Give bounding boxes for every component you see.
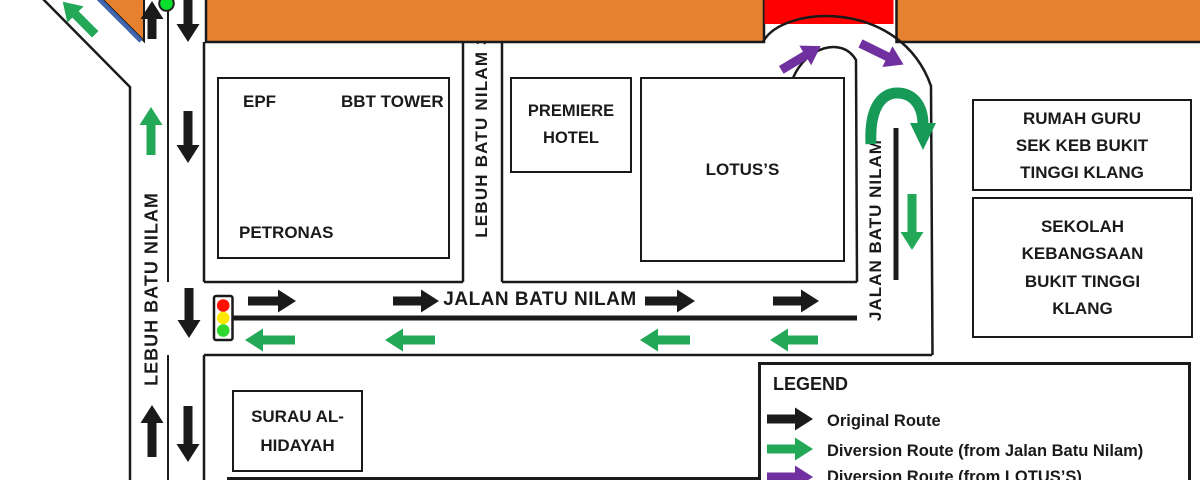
black-route-arrow — [393, 290, 439, 313]
bbt-tower-label: BBT TOWER — [341, 92, 444, 112]
black-route-arrow — [178, 288, 201, 338]
petronas-label: PETRONAS — [239, 223, 333, 243]
sekolah-line1: SEKOLAH — [1041, 213, 1124, 241]
premiere-hotel-building: PREMIERE HOTEL — [510, 77, 632, 173]
green-route-arrow — [140, 107, 163, 155]
black-route-arrow — [773, 290, 819, 313]
rumah-guru-line3: TINGGI KLANG — [1020, 159, 1144, 186]
legend-item-diversion-lotus: Diversion Route (from LOTUS’S) — [827, 468, 1082, 480]
black-route-arrow — [141, 1, 164, 39]
legend-title: LEGEND — [773, 374, 848, 395]
legend-item-original-route: Original Route — [827, 412, 941, 431]
sekolah-line3: BUKIT TINGGI — [1025, 268, 1140, 296]
lotus-label: LOTUS’S — [706, 156, 780, 183]
epf-bbt-petronas-block: EPF BBT TOWER PETRONAS — [217, 77, 450, 259]
black-route-arrow — [177, 0, 200, 42]
surau-line1: SURAU AL- — [251, 402, 344, 431]
sekolah-kebangsaan-building: SEKOLAH KEBANGSAAN BUKIT TINGGI KLANG — [972, 197, 1193, 338]
surau-line2: HIDAYAH — [260, 431, 334, 460]
premiere-hotel-label-line1: PREMIERE — [528, 98, 614, 125]
closed-road-section — [765, 0, 894, 24]
lebuh-batu-nilam-3-road-label: LEBUH BATU NILAM 3 — [472, 34, 492, 238]
epf-label: EPF — [243, 92, 276, 112]
purple-route-arrow — [775, 36, 826, 79]
black-route-arrow — [177, 406, 200, 462]
black-route-arrow — [645, 290, 695, 313]
blue-road-stripe — [98, 0, 141, 41]
lebuh-batu-nilam-road-label: LEBUH BATU NILAM — [142, 192, 163, 386]
traffic-light-icon — [214, 296, 233, 340]
green-route-arrow — [640, 329, 690, 352]
green-route-arrow — [385, 329, 435, 352]
green-route-arrow — [901, 194, 924, 250]
lebuh-left-edge — [42, 0, 130, 480]
legend-item-diversion-jalan-batu-nilam: Diversion Route (from Jalan Batu Nilam) — [827, 442, 1143, 461]
orange-block-top-right — [897, 0, 1200, 42]
green-route-arrow — [55, 0, 104, 42]
lotus-building: LOTUS’S — [640, 77, 845, 262]
rumah-guru-building: RUMAH GURU SEK KEB BUKIT TINGGI KLANG — [972, 99, 1192, 191]
orange-wedge-top-left — [101, 0, 144, 41]
black-route-arrow — [177, 111, 200, 163]
signal-dot-icon — [159, 0, 174, 11]
diversion-map: EPF BBT TOWER PETRONAS PREMIERE HOTEL LO… — [0, 0, 1200, 480]
green-route-arrow — [245, 329, 295, 352]
purple-route-arrow — [855, 33, 908, 75]
sekolah-line4: KLANG — [1052, 295, 1112, 323]
rumah-guru-line1: RUMAH GURU — [1023, 105, 1141, 132]
legend: LEGEND Original Route Diversion Route (f… — [758, 362, 1191, 480]
jalan-batu-nilam-vertical-road-label: JALAN BATU NILAM — [866, 139, 886, 321]
rumah-guru-line2: SEK KEB BUKIT — [1016, 132, 1148, 159]
surau-building: SURAU AL- HIDAYAH — [232, 390, 363, 472]
green-route-arrow — [770, 329, 818, 352]
black-route-arrow — [141, 405, 164, 457]
black-route-arrow — [248, 290, 296, 313]
sekolah-line2: KEBANGSAAN — [1022, 240, 1144, 268]
premiere-hotel-label-line2: HOTEL — [543, 125, 599, 152]
jalan-batu-nilam-road-label: JALAN BATU NILAM — [443, 289, 636, 311]
